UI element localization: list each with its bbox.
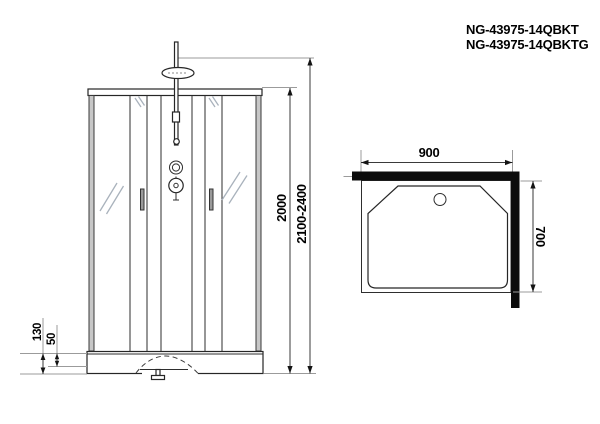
dim-label-tray-height: 130 — [32, 323, 44, 341]
dim-label-width: 900 — [419, 145, 440, 160]
arrow-up-icon — [307, 58, 312, 66]
pole-end-cap — [174, 139, 180, 145]
top-view: 900 700 — [344, 145, 549, 308]
left-frame — [89, 96, 94, 352]
drawing-canvas: 130 50 2000 2100-2400 — [0, 0, 600, 424]
right-frame — [256, 96, 261, 352]
door-handle-left — [141, 189, 145, 210]
diverter-knob — [170, 161, 183, 174]
technical-drawing-page: 130 50 2000 2100-2400 — [0, 0, 600, 424]
dim-label-inner-height: 2000 — [274, 194, 289, 222]
wall-right — [511, 172, 520, 309]
diverter-knob-inner — [172, 164, 179, 171]
model-number-line1: NG-43975-14QBKT — [466, 22, 589, 37]
tray-apron-opening — [142, 372, 198, 376]
arrow-down-icon — [41, 368, 46, 375]
front-view: 130 50 2000 2100-2400 — [20, 42, 316, 380]
tray-plan-outline — [368, 186, 508, 288]
drain-circle — [434, 194, 446, 206]
dim-label-tray-lip: 50 — [46, 333, 58, 345]
arrow-up-icon — [41, 354, 46, 361]
arrow-up-icon — [55, 354, 59, 360]
tray-front — [87, 352, 263, 374]
model-numbers: NG-43975-14QBKT NG-43975-14QBKTG — [466, 22, 589, 52]
arrow-down-icon — [287, 366, 292, 374]
arrow-right-icon — [505, 160, 513, 165]
arrow-down-icon — [307, 366, 312, 374]
wall-top — [352, 172, 520, 181]
arrow-up-icon — [530, 181, 535, 189]
arrow-down-icon — [530, 285, 535, 293]
arrow-up-icon — [287, 88, 292, 96]
door-handle-right — [210, 189, 214, 210]
model-number-line2: NG-43975-14QBKTG — [466, 37, 589, 52]
dim-label-total-height: 2100-2400 — [294, 184, 309, 244]
pole-slider-clamp — [173, 112, 180, 122]
arrow-down-icon — [55, 361, 59, 367]
shower-pole — [175, 42, 179, 145]
dim-label-depth: 700 — [533, 226, 548, 247]
arrow-left-icon — [361, 160, 369, 165]
mixer-knob — [169, 177, 183, 201]
room-outline — [362, 181, 512, 293]
